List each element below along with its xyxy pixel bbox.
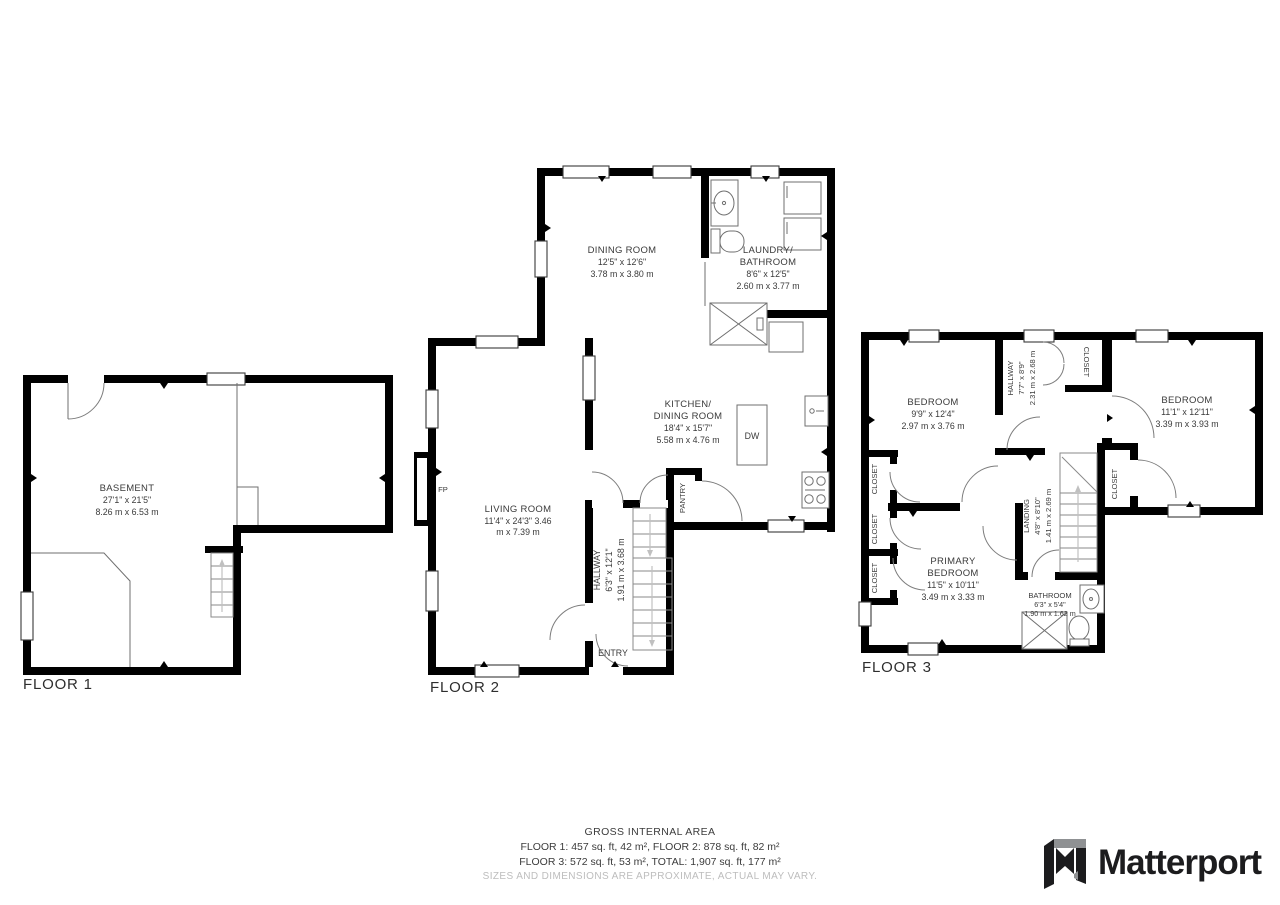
living-room-label: LIVING ROOM 11'4" x 24'3" 3.46 m x 7.39 … <box>484 504 551 537</box>
pantry-label: PANTRY <box>678 483 687 513</box>
bedroom1-name: BEDROOM <box>907 397 958 408</box>
floor1-stairs <box>211 553 233 617</box>
washer <box>784 182 821 214</box>
laundry-bathroom-label: LAUNDRY/ BATHROOM 8'6" x 12'5" 2.60 m x … <box>736 245 799 291</box>
matterport-wordmark: Matterport <box>1098 843 1261 883</box>
basement-dim-ft: 27'1" x 21'5" <box>103 495 151 505</box>
fireplace-label: FP <box>438 485 448 494</box>
floor2-plan: DINING ROOM 12'5" x 12'6" 3.78 m x 3.80 … <box>414 166 835 696</box>
landing-label: LANDING 4'8" x 8'10" 1.41 m x 2.69 m <box>1022 489 1053 543</box>
bathroom-toilet <box>1069 616 1089 640</box>
bedroom2-dim-m: 3.39 m x 3.93 m <box>1155 419 1218 429</box>
bedroom2-closet-label: CLOSET <box>1110 468 1119 499</box>
kitchen-dim-ft: 18'4" x 15'7" <box>664 423 712 433</box>
floor3-plan: BEDROOM 9'9" x 12'4" 2.97 m x 3.76 m HAL… <box>859 330 1263 676</box>
bedroom2-label: BEDROOM 11'1" x 12'11" 3.39 m x 3.93 m <box>1155 395 1218 429</box>
gia-line2: FLOOR 3: 572 sq. ft, 53 m², TOTAL: 1,907… <box>320 856 980 868</box>
bathroom3-name: BATHROOM <box>1028 591 1071 600</box>
dishwasher-label: DW <box>745 431 760 441</box>
floor-plan-drawing: BASEMENT 27'1" x 21'5" 8.26 m x 6.53 m F… <box>0 0 1280 905</box>
floor2-label: FLOOR 2 <box>430 679 500 696</box>
laundry-dim-m: 2.60 m x 3.77 m <box>736 281 799 291</box>
primary-bedroom-label: PRIMARY BEDROOM 11'5" x 10'11" 3.49 m x … <box>921 556 984 602</box>
bathroom3-dim-m: 1.90 m x 1.62 m <box>1024 609 1076 618</box>
primary-dim-ft: 11'5" x 10'11" <box>927 580 979 590</box>
hallway3-name: HALLWAY <box>1006 361 1015 396</box>
laundry-name2: BATHROOM <box>740 257 797 268</box>
closet-a-label: CLOSET <box>870 463 879 494</box>
landing-dim-m: 1.41 m x 2.69 m <box>1044 489 1053 543</box>
refrigerator <box>769 322 803 352</box>
floor1-plan: BASEMENT 27'1" x 21'5" 8.26 m x 6.53 m F… <box>21 373 393 693</box>
toilet-tank <box>711 229 720 253</box>
floor1-door-arcs <box>68 383 104 419</box>
gia-title: GROSS INTERNAL AREA <box>320 826 980 838</box>
primary-name2: BEDROOM <box>927 568 978 579</box>
dining-room-label: DINING ROOM 12'5" x 12'6" 3.78 m x 3.80 … <box>588 245 657 279</box>
bathroom3-label: BATHROOM 6'3" x 5'4" 1.90 m x 1.62 m <box>1024 591 1076 618</box>
dining-name: DINING ROOM <box>588 245 657 256</box>
living-dim-m: m x 7.39 m <box>496 527 540 537</box>
entry-label: ENTRY <box>598 648 628 658</box>
hallway2-dim-m: 1.91 m x 3.68 m <box>616 538 626 601</box>
floor2-fixtures <box>710 180 829 508</box>
kitchen-label: KITCHEN/ DINING ROOM 18'4" x 15'7" 5.58 … <box>654 399 723 445</box>
matterport-logo-icon <box>1042 836 1088 890</box>
hallway2-name: HALLWAY <box>592 550 602 591</box>
bedroom1-label: BEDROOM 9'9" x 12'4" 2.97 m x 3.76 m <box>901 397 964 431</box>
living-dim-ft: 11'4" x 24'3" 3.46 <box>484 516 551 526</box>
dining-dim-ft: 12'5" x 12'6" <box>598 257 646 267</box>
laundry-name1: LAUNDRY/ <box>743 245 793 256</box>
gross-internal-area-block: GROSS INTERNAL AREA FLOOR 1: 457 sq. ft,… <box>320 826 980 882</box>
bedroom1-dim-ft: 9'9" x 12'4" <box>911 409 954 419</box>
gia-line1: FLOOR 1: 457 sq. ft, 42 m², FLOOR 2: 878… <box>320 841 980 853</box>
floor3-stairs <box>1060 453 1097 572</box>
gia-disclaimer: SIZES AND DIMENSIONS ARE APPROXIMATE, AC… <box>320 871 980 882</box>
floor-plan-page: BASEMENT 27'1" x 21'5" 8.26 m x 6.53 m F… <box>0 0 1280 905</box>
bedroom2-name: BEDROOM <box>1161 395 1212 406</box>
kitchen-dim-m: 5.58 m x 4.76 m <box>656 435 719 445</box>
living-name: LIVING ROOM <box>485 504 552 515</box>
bedroom2-dim-ft: 11'1" x 12'11" <box>1161 407 1213 417</box>
hallway3-dim-m: 2.31 m x 2.68 m <box>1028 351 1037 405</box>
primary-name1: PRIMARY <box>930 556 976 567</box>
floor3-label: FLOOR 3 <box>862 659 932 676</box>
landing-dim-ft: 4'8" x 8'10" <box>1033 497 1042 535</box>
hallway3-dim-ft: 7'7" x 8'9" <box>1017 361 1026 395</box>
floor1-interior-lines <box>31 383 258 667</box>
primary-dim-m: 3.49 m x 3.33 m <box>921 592 984 602</box>
hallway-closet-label: CLOSET <box>1082 347 1091 378</box>
bedroom1-dim-m: 2.97 m x 3.76 m <box>901 421 964 431</box>
kitchen-name1: KITCHEN/ <box>665 399 712 410</box>
landing-name: LANDING <box>1022 499 1031 533</box>
hallway2-label: HALLWAY 6'3" x 12'1" 1.91 m x 3.68 m <box>592 538 626 601</box>
basement-room-label: BASEMENT 27'1" x 21'5" 8.26 m x 6.53 m <box>95 483 158 517</box>
hallway3-label: HALLWAY 7'7" x 8'9" 2.31 m x 2.68 m <box>1006 351 1037 405</box>
basement-name: BASEMENT <box>100 483 155 494</box>
floor1-walls <box>23 375 393 675</box>
closet-c-label: CLOSET <box>870 562 879 593</box>
basement-dim-m: 8.26 m x 6.53 m <box>95 507 158 517</box>
dining-dim-m: 3.78 m x 3.80 m <box>590 269 653 279</box>
hallway2-dim-ft: 6'3" x 12'1" <box>604 548 614 591</box>
matterport-brand: Matterport <box>1042 836 1261 890</box>
laundry-dim-ft: 8'6" x 12'5" <box>746 269 789 279</box>
toilet-bowl <box>720 231 744 252</box>
kitchen-name2: DINING ROOM <box>654 411 723 422</box>
bathroom3-dim-ft: 6'3" x 5'4" <box>1034 600 1066 609</box>
closet-b-label: CLOSET <box>870 513 879 544</box>
floor1-label: FLOOR 1 <box>23 676 93 693</box>
